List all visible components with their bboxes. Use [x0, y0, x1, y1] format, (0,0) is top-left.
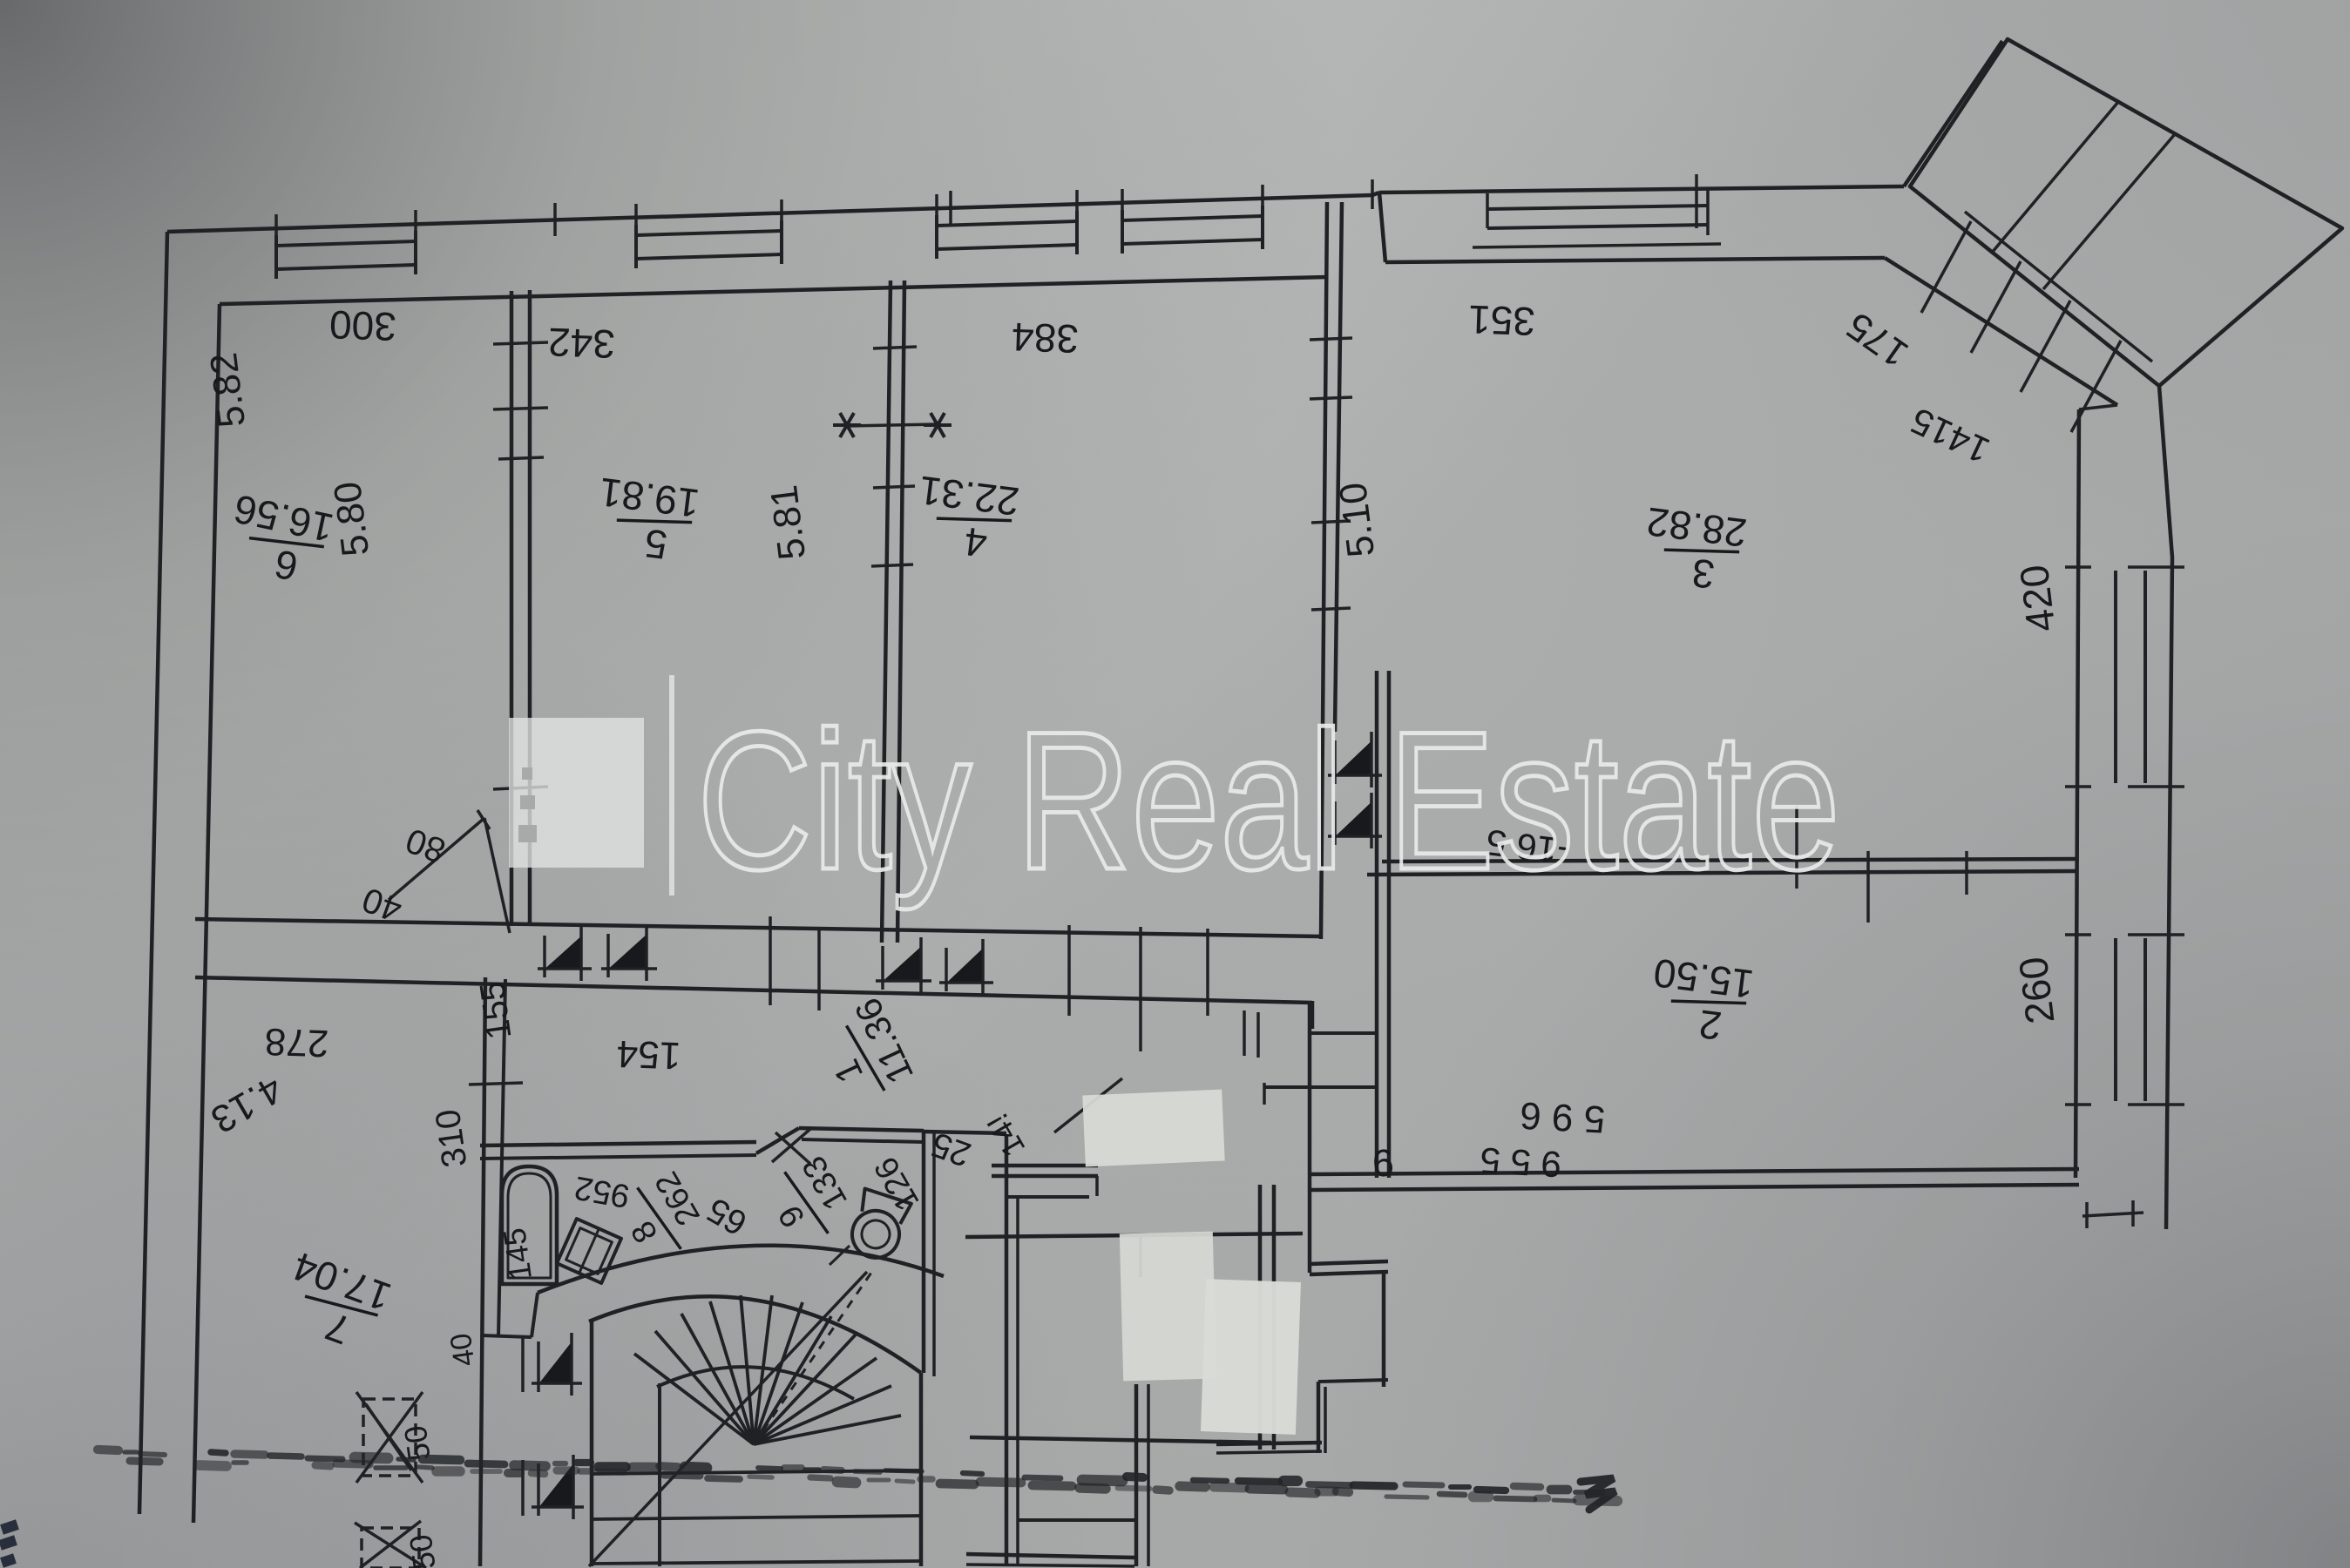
svg-text:5.81: 5.81	[762, 483, 814, 562]
svg-text:9: 9	[1371, 1140, 1396, 1185]
svg-text:City Real Estate: City Real Estate	[697, 690, 1840, 910]
svg-text:40: 40	[444, 1331, 482, 1369]
svg-text:5 9 6: 5 9 6	[1519, 1093, 1606, 1140]
svg-text:5.80: 5.80	[326, 479, 377, 558]
svg-text:9 5 5: 9 5 5	[1479, 1140, 1562, 1186]
svg-text:5.10: 5.10	[1331, 480, 1383, 559]
svg-text:145: 145	[496, 1226, 538, 1282]
svg-text:384: 384	[1011, 314, 1080, 362]
svg-text:5.82: 5.82	[202, 350, 254, 429]
svg-text:50: 50	[403, 1532, 443, 1568]
svg-text:300: 300	[328, 302, 397, 350]
svg-text:310: 310	[429, 1107, 475, 1170]
svg-text:351: 351	[1467, 297, 1536, 345]
svg-text:342: 342	[547, 320, 616, 368]
svg-text:260: 260	[2010, 955, 2063, 1027]
svg-text:278: 278	[264, 1020, 329, 1065]
svg-text:420: 420	[2011, 563, 2064, 635]
svg-text:155: 155	[473, 979, 519, 1042]
svg-text:154: 154	[616, 1032, 681, 1078]
